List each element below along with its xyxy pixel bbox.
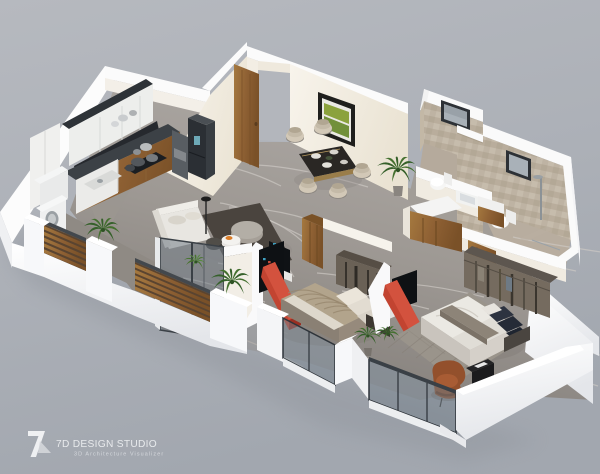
svg-text:3D Architecture Visualizer: 3D Architecture Visualizer [74,452,164,458]
svg-text:7D DESIGN STUDIO: 7D DESIGN STUDIO [56,439,157,450]
